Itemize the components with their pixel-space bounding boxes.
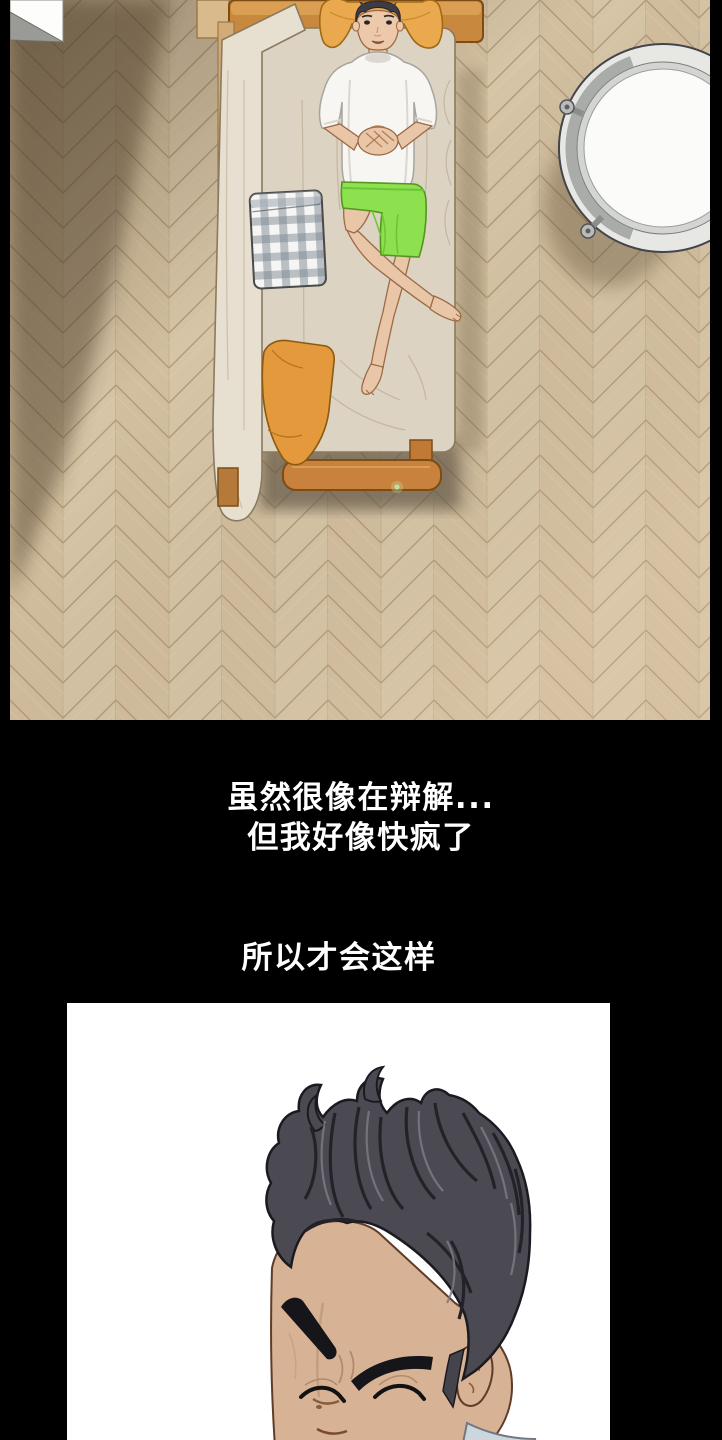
right-eye	[386, 20, 392, 24]
caption-line-1: 虽然很像在辩解...	[0, 781, 722, 815]
caption-line-3: 所以才会这样	[0, 941, 700, 975]
left-ear	[353, 21, 360, 31]
bed-leg	[218, 468, 238, 506]
caption-line-2: 但我好像快疯了	[0, 821, 722, 855]
comic-page: { "page": { "kind": "webtoon comic strip…	[0, 0, 722, 1440]
top-scene-illustration	[10, 0, 710, 720]
sparkle	[391, 481, 403, 493]
top-panel-overhead-bedroom	[10, 0, 710, 720]
bottom-panel-closeup	[67, 1003, 610, 1440]
bottom-scene-illustration	[67, 1003, 610, 1440]
checkered-pillow	[249, 190, 326, 289]
nostril	[316, 1405, 322, 1409]
clasped-hands	[358, 127, 398, 155]
left-eye	[364, 20, 370, 24]
furniture-corner	[10, 0, 63, 42]
collar	[365, 53, 391, 63]
right-ear	[397, 21, 404, 31]
